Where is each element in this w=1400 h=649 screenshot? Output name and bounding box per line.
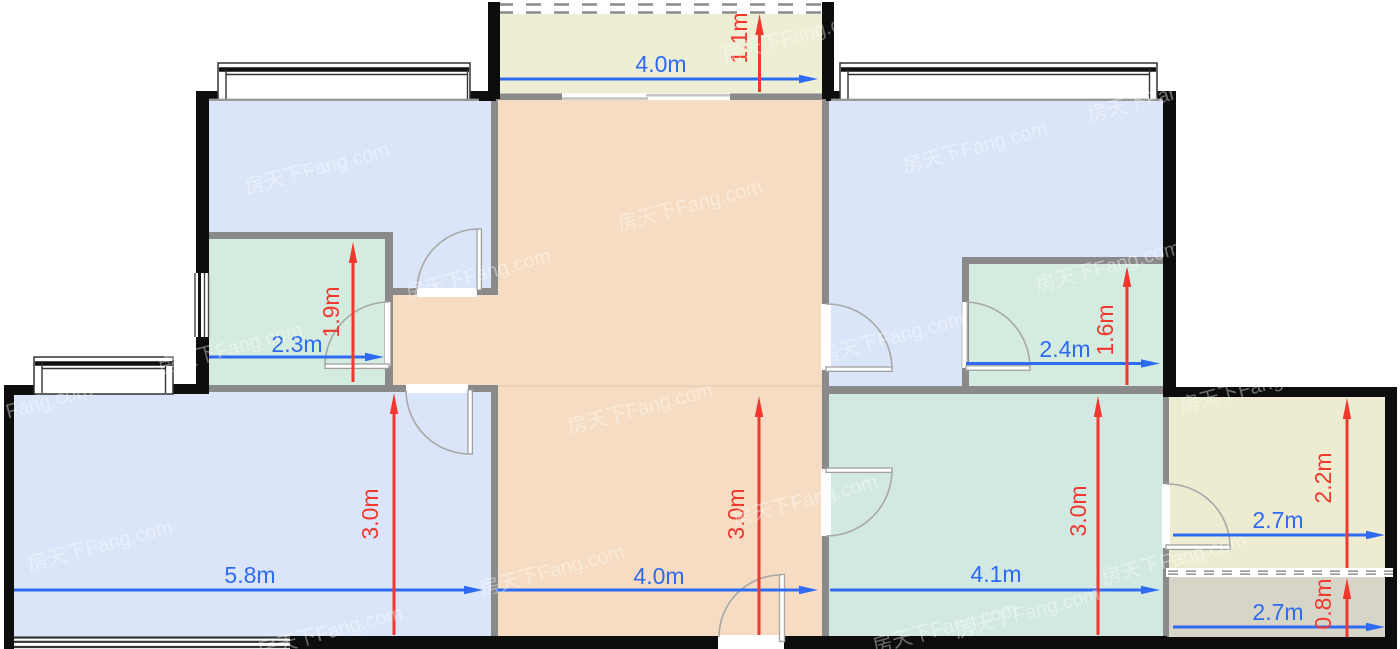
svg-text:2.7m: 2.7m bbox=[1252, 599, 1303, 625]
svg-text:1.9m: 1.9m bbox=[318, 286, 344, 337]
svg-text:0.8m: 0.8m bbox=[1310, 578, 1336, 629]
svg-text:4.0m: 4.0m bbox=[633, 563, 684, 589]
svg-text:2.7m: 2.7m bbox=[1252, 507, 1303, 533]
svg-text:3.0m: 3.0m bbox=[1065, 485, 1091, 536]
svg-text:4.1m: 4.1m bbox=[970, 561, 1021, 587]
svg-text:3.0m: 3.0m bbox=[357, 488, 383, 539]
svg-text:2.2m: 2.2m bbox=[1310, 452, 1336, 503]
svg-text:4.0m: 4.0m bbox=[635, 51, 686, 77]
svg-text:2.4m: 2.4m bbox=[1039, 336, 1090, 362]
svg-text:1.6m: 1.6m bbox=[1092, 304, 1118, 355]
svg-text:5.8m: 5.8m bbox=[224, 562, 275, 588]
